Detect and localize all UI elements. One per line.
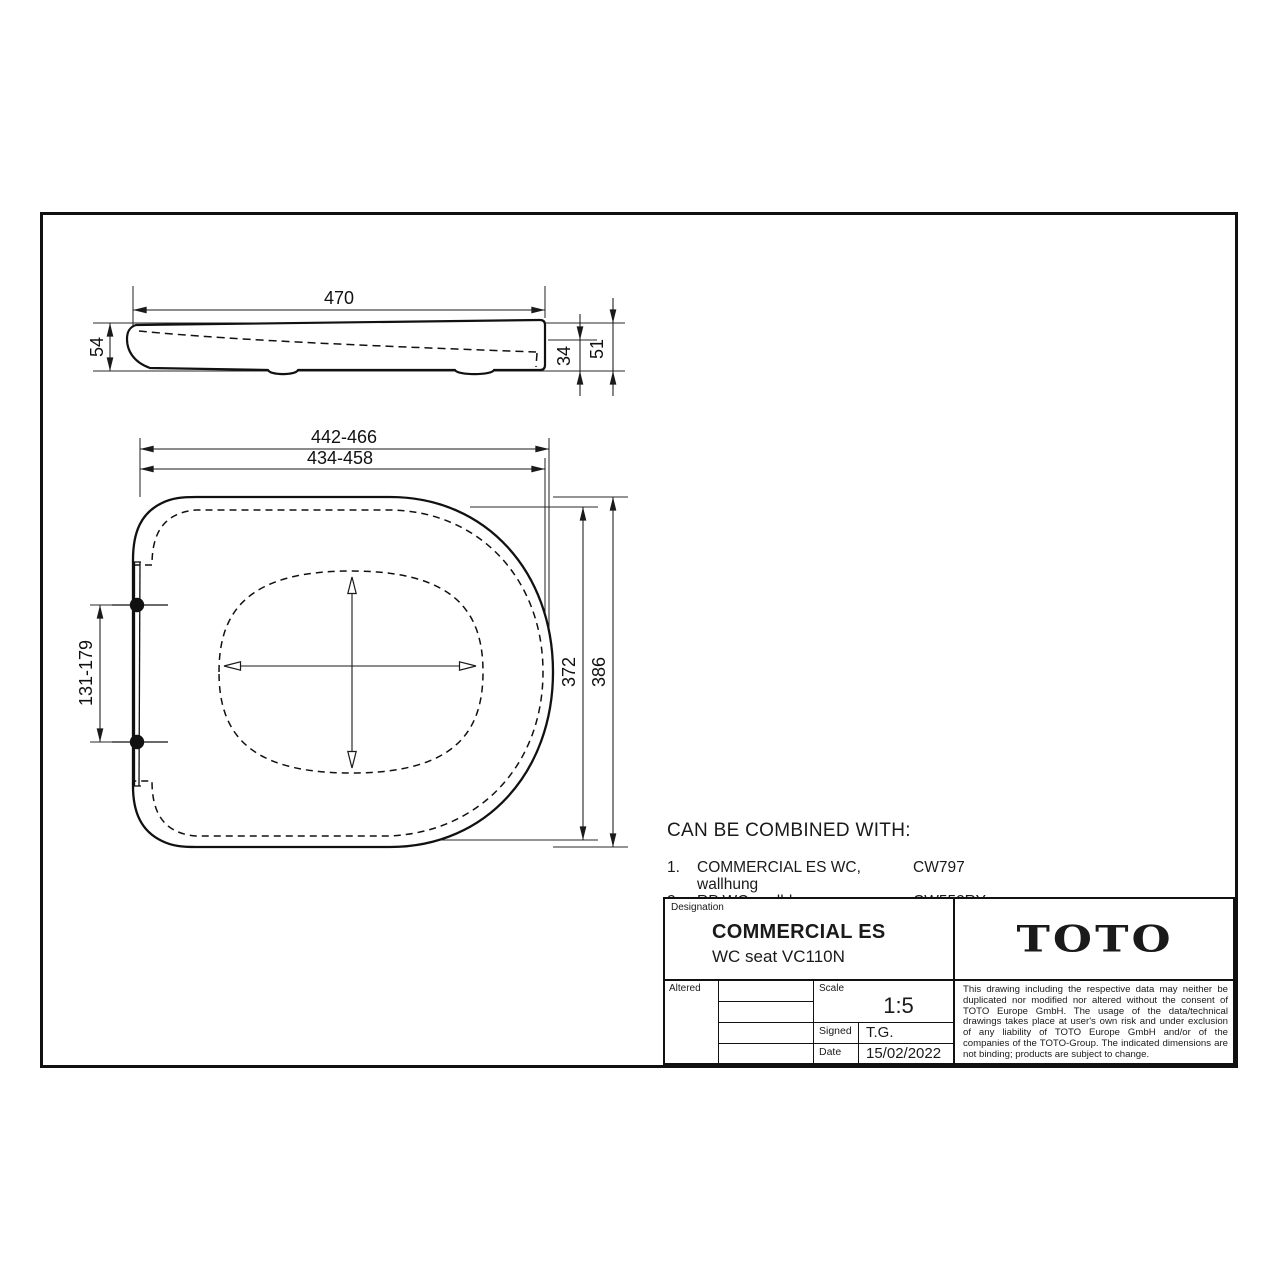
signed-row: Signed T.G.	[814, 1023, 955, 1044]
item-number: 1.	[667, 859, 697, 893]
item-name: COMMERCIAL ES WC, wallhung	[697, 859, 913, 893]
dim-label-depth-seat: 372	[559, 657, 579, 687]
revision-row	[719, 981, 813, 1002]
technical-drawing: 470 54 34 51	[0, 0, 1280, 1280]
designation-label: Designation	[671, 902, 947, 913]
top-view: 442-466 434-458 131-179 372 386	[76, 427, 628, 847]
date-row: Date 15/02/2022	[814, 1044, 955, 1063]
signed-label: Signed	[814, 1023, 859, 1043]
dim-label-hinge-spacing: 131-179	[76, 640, 96, 706]
seat-lid-outline	[133, 497, 553, 847]
dim-label-width-inner: 434-458	[307, 448, 373, 468]
series-title: COMMERCIAL ES	[712, 921, 947, 944]
revision-row	[719, 1044, 813, 1065]
date-value: 15/02/2022	[859, 1044, 953, 1063]
dim-label-seat-height: 34	[554, 346, 574, 366]
side-view: 470 54 34 51	[87, 286, 625, 396]
combination-heading: CAN BE COMBINED WITH:	[667, 820, 1087, 842]
scale-value: 1:5	[819, 993, 948, 1019]
drawing-sheet: 470 54 34 51	[0, 0, 1280, 1280]
scale-cell: Scale 1:5	[814, 981, 955, 1023]
dim-label-total-height: 51	[587, 339, 607, 359]
designation-cell: Designation COMMERCIAL ES WC seat VC110N	[665, 899, 955, 981]
revision-row	[719, 1002, 813, 1023]
combination-item: 1. COMMERCIAL ES WC, wallhung CW797	[667, 859, 1087, 893]
dim-label-width-outer: 442-466	[311, 427, 377, 447]
logo-cell: TOTO	[955, 899, 1235, 981]
product-name: WC seat VC110N	[712, 947, 947, 967]
title-block: Designation COMMERCIAL ES WC seat VC110N…	[663, 897, 1235, 1065]
date-label: Date	[814, 1044, 859, 1063]
toto-logo: TOTO	[1016, 918, 1173, 960]
signed-value: T.G.	[859, 1023, 953, 1043]
seat-side-profile	[127, 320, 545, 374]
altered-cell: Altered	[665, 981, 719, 1065]
dim-label-length: 470	[324, 288, 354, 308]
item-code: CW797	[913, 859, 1033, 893]
disclaimer-text: This drawing including the respective da…	[955, 981, 1235, 1065]
revision-rows	[719, 981, 814, 1065]
dim-label-height: 54	[87, 337, 107, 357]
altered-label: Altered	[669, 983, 701, 994]
hinge-bolt-bottom	[130, 735, 144, 749]
dim-label-depth-lid: 386	[589, 657, 609, 687]
revision-row	[719, 1023, 813, 1044]
hinge-bolt-top	[130, 598, 144, 612]
